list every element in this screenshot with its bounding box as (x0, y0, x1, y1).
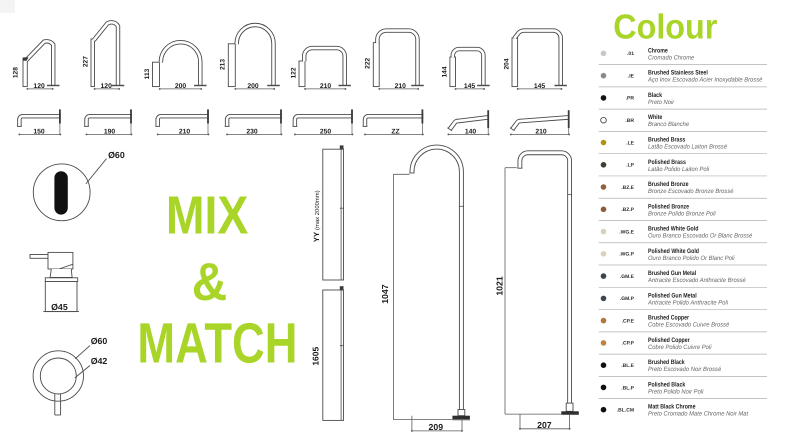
svg-text:200: 200 (175, 83, 187, 90)
svg-text:210: 210 (179, 128, 191, 135)
svg-text:Black: Black (648, 92, 662, 99)
svg-text:Chrome: Chrome (648, 47, 668, 54)
svg-text:Cobre Escovado Cuivre Brossé: Cobre Escovado Cuivre Brossé (648, 322, 730, 329)
svg-text:.BL.E: .BL.E (621, 363, 634, 369)
svg-text:1021: 1021 (495, 276, 505, 295)
svg-text:.CP.P: .CP.P (622, 341, 635, 347)
svg-text:213: 213 (220, 59, 227, 70)
svg-text:190: 190 (104, 128, 116, 135)
svg-text:Ø60: Ø60 (91, 336, 108, 346)
svg-text:Preto Escovado Noir Brossé: Preto Escovado Noir Brossé (648, 366, 722, 373)
svg-text:.BZ.E: .BZ.E (621, 185, 634, 191)
svg-text:.GM.E: .GM.E (620, 274, 635, 280)
svg-text:Polished Black: Polished Black (648, 381, 686, 388)
svg-text:.WG.P: .WG.P (619, 252, 634, 258)
svg-text:227: 227 (82, 56, 89, 67)
svg-text:Polished Copper: Polished Copper (648, 337, 690, 344)
svg-text:.LP: .LP (626, 163, 634, 169)
svg-text:1605: 1605 (310, 346, 320, 365)
svg-text:145: 145 (534, 83, 546, 90)
svg-text:White: White (648, 114, 663, 121)
svg-text:Ouro Branco Escovado Or Blanc: Ouro Branco Escovado Or Blanc Brossé (648, 233, 753, 240)
svg-text:Brushed Bronze: Brushed Bronze (648, 181, 689, 188)
svg-text:113: 113 (144, 68, 151, 79)
svg-text:.CP.E: .CP.E (622, 318, 635, 324)
svg-text:128: 128 (13, 67, 20, 78)
svg-text:Ø45: Ø45 (51, 302, 68, 312)
svg-text:Brushed Stainless Steel: Brushed Stainless Steel (648, 70, 708, 77)
svg-text:Brushed Brass: Brushed Brass (648, 137, 686, 144)
svg-text:150: 150 (33, 128, 45, 135)
svg-text:Bronze Escovado Bronze Brossé: Bronze Escovado Bronze Brossé (648, 188, 734, 195)
svg-text:Antracite Polido Anthracite Po: Antracite Polido Anthracite Poli (647, 299, 729, 306)
svg-text:200: 200 (247, 83, 259, 90)
svg-text:Polished Brass: Polished Brass (648, 159, 686, 166)
svg-text:Bronze Polido Bronze Poli: Bronze Polido Bronze Poli (648, 210, 716, 217)
svg-text:120: 120 (101, 83, 113, 90)
svg-text:145: 145 (464, 83, 476, 90)
svg-text:204: 204 (503, 58, 510, 69)
svg-text:210: 210 (320, 83, 332, 90)
svg-text:Aço Inox Escovado Acier Inoxyd: Aço Inox Escovado Acier Inoxydable Bross… (647, 77, 763, 84)
svg-text:.LE: .LE (626, 140, 634, 146)
svg-text:209: 209 (429, 422, 444, 432)
svg-text:Brushed White Gold: Brushed White Gold (648, 226, 698, 233)
svg-text:144: 144 (442, 66, 449, 77)
svg-text:.GM.P: .GM.P (620, 296, 635, 302)
svg-text:230: 230 (246, 128, 258, 135)
svg-text:Matt Black Chrome: Matt Black Chrome (648, 404, 696, 411)
svg-text:1047: 1047 (380, 284, 390, 303)
svg-text:MATCH: MATCH (137, 312, 297, 375)
svg-text:.01: .01 (627, 51, 634, 57)
svg-text:250: 250 (320, 128, 332, 135)
svg-text:Colour: Colour (613, 8, 717, 46)
svg-text:Branco Blanche: Branco Blanche (648, 121, 690, 128)
svg-text:Latão Escovado Laiton Brossé: Latão Escovado Laiton Brossé (648, 144, 728, 151)
svg-text:Cobre Polido Cuivre Poli: Cobre Polido Cuivre Poli (648, 344, 712, 351)
svg-text:Polished White Gold: Polished White Gold (648, 248, 699, 255)
svg-text:Brushed Gun Metal: Brushed Gun Metal (648, 270, 696, 277)
svg-text:120: 120 (33, 83, 45, 90)
svg-text:ZZ: ZZ (391, 128, 399, 135)
svg-text:.BZ.P: .BZ.P (621, 207, 634, 213)
svg-text:MIX: MIX (166, 185, 249, 245)
svg-text:Latão Polido Laiton Poli: Latão Polido Laiton Poli (648, 166, 710, 173)
svg-text:Brushed Copper: Brushed Copper (648, 315, 690, 322)
svg-text:&: & (192, 253, 228, 312)
svg-text:.BL.CM: .BL.CM (617, 408, 634, 414)
svg-text:210: 210 (395, 83, 407, 90)
svg-text:Preto Cromado Mate Chrome Noir: Preto Cromado Mate Chrome Noir Mat (648, 411, 748, 418)
svg-text:Ø60: Ø60 (108, 150, 125, 160)
svg-text:122: 122 (290, 67, 297, 78)
svg-text:Antracite Escovado Anthracite: Antracite Escovado Anthracite Brossé (647, 277, 746, 284)
svg-text:Cromado Chrome: Cromado Chrome (648, 54, 695, 61)
svg-text:Ø42: Ø42 (91, 356, 108, 366)
svg-text:Preto Noir: Preto Noir (648, 99, 675, 106)
svg-text:207: 207 (537, 420, 552, 430)
svg-text:Polished Bronze: Polished Bronze (648, 203, 689, 210)
svg-text:210: 210 (535, 128, 547, 135)
svg-text:140: 140 (465, 128, 477, 135)
svg-text:222: 222 (365, 57, 372, 68)
svg-text:Preto Polido Noir Poli: Preto Polido Noir Poli (648, 388, 704, 395)
svg-text:.BR: .BR (625, 118, 634, 124)
svg-text:Brushed Black: Brushed Black (648, 359, 685, 366)
svg-text:Polished Gun Metal: Polished Gun Metal (648, 292, 697, 299)
svg-text:.BL.P: .BL.P (621, 385, 634, 391)
svg-text:Ouro Branco Polido Or Blanc Po: Ouro Branco Polido Or Blanc Poli (648, 255, 735, 262)
svg-text:.WG.E: .WG.E (619, 229, 634, 235)
svg-text:.PR: .PR (626, 96, 635, 102)
svg-text:.IE: .IE (628, 73, 635, 79)
